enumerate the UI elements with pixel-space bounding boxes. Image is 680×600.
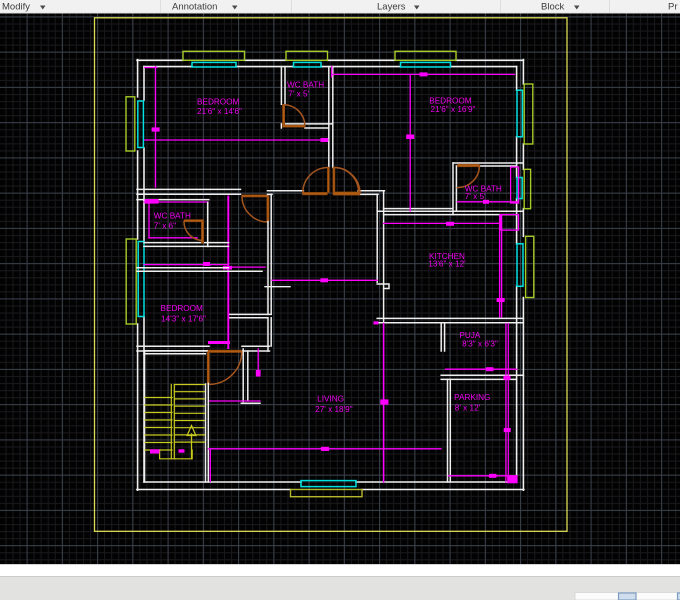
svg-text:PARKING: PARKING (454, 393, 490, 402)
svg-text:Block: Block (541, 2, 564, 13)
svg-text:7' x 6": 7' x 6" (154, 221, 176, 230)
svg-text:WC BATH: WC BATH (154, 211, 191, 220)
svg-text:8' x 12': 8' x 12' (455, 404, 481, 413)
svg-text:Layers: Layers (377, 2, 406, 13)
svg-text:LIVING: LIVING (317, 395, 344, 404)
svg-text:7' x 5': 7' x 5' (288, 89, 309, 98)
svg-text:Pr: Pr (668, 2, 678, 13)
svg-text:BEDROOM: BEDROOM (161, 304, 203, 313)
svg-text:Modify: Modify (2, 2, 30, 13)
svg-text:21'6" x 16'9": 21'6" x 16'9" (431, 105, 476, 114)
svg-text:BEDROOM: BEDROOM (197, 97, 239, 106)
svg-text:27' x 18'9": 27' x 18'9" (315, 405, 353, 414)
svg-text:Annotation: Annotation (172, 2, 217, 13)
svg-text:WC BATH: WC BATH (287, 80, 324, 89)
svg-text:14'3" x 17'6": 14'3" x 17'6" (161, 314, 206, 323)
svg-text:13'6" x 12': 13'6" x 12' (428, 259, 466, 268)
svg-text:7' x 5': 7' x 5' (465, 192, 486, 201)
svg-text:8'3" x 6'3": 8'3" x 6'3" (462, 339, 498, 348)
svg-text:21'6" x 14'6": 21'6" x 14'6" (197, 107, 242, 116)
